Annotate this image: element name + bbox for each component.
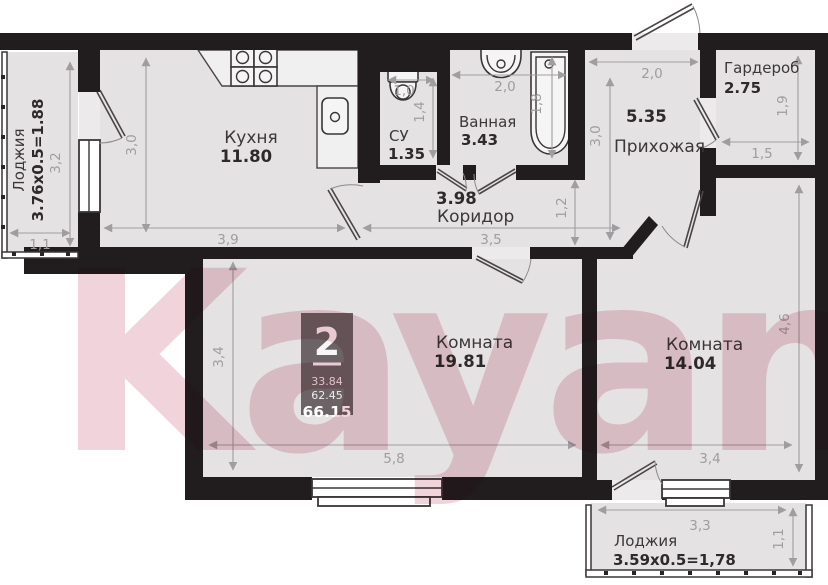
floor-plan-page: 3,2 1,1 3,0 3,9 1,0 1,4 2,0 1,8 2,0 3,0 … [0,0,828,585]
bath-area: 3.43 [461,131,498,149]
bath-name: Ванная [459,113,516,131]
wardrobe-name: Гардероб [724,59,799,77]
loggia-bottom-area: 3.59x0.5=1,78 [613,551,736,569]
hall-area: 5.35 [626,107,667,126]
loggia-left-name: Лоджия [10,128,28,191]
dim-wc-h: 1,4 [412,101,428,122]
dim-loggia-bottom-w: 3,3 [689,518,710,534]
watermark-text: Kayan [55,218,828,509]
hall-name: Прихожая [614,137,705,157]
dim-wardrobe-h: 1,9 [775,95,791,116]
stove-icon [231,48,277,86]
wardrobe-area: 2.75 [724,79,761,97]
dim-hall-h: 3,0 [588,125,604,146]
dim-loggia-bottom-h: 1,1 [771,528,787,549]
loggia-bottom-name: Лоджия [614,532,677,550]
loggia-left-area: 3.76x0.5=1.88 [29,99,47,222]
dim-wc-w: 1,0 [393,83,414,99]
dim-kitchen-h: 3,0 [124,134,140,155]
kitchen-sink-icon [322,98,348,134]
corridor-area: 3.98 [436,189,477,208]
window-loggia-kitchen [79,140,100,212]
kitchen-name: Кухня [224,128,278,148]
dim-corridor-h: 1,2 [554,197,570,218]
wc-area: 1.35 [388,145,425,163]
kitchen-area: 11.80 [220,147,272,166]
floor-plan-svg: 3,2 1,1 3,0 3,9 1,0 1,4 2,0 1,8 2,0 3,0 … [0,0,828,585]
dim-bath-w: 2,0 [494,79,515,95]
dim-loggia-left-w: 1,1 [29,237,50,253]
dim-wardrobe-w: 1,5 [751,146,772,162]
wc-name: СУ [389,127,409,145]
dim-hall-w: 2,0 [641,66,662,82]
dim-loggia-left-h: 3,2 [48,152,64,173]
dim-bath-h: 1,8 [529,93,545,114]
